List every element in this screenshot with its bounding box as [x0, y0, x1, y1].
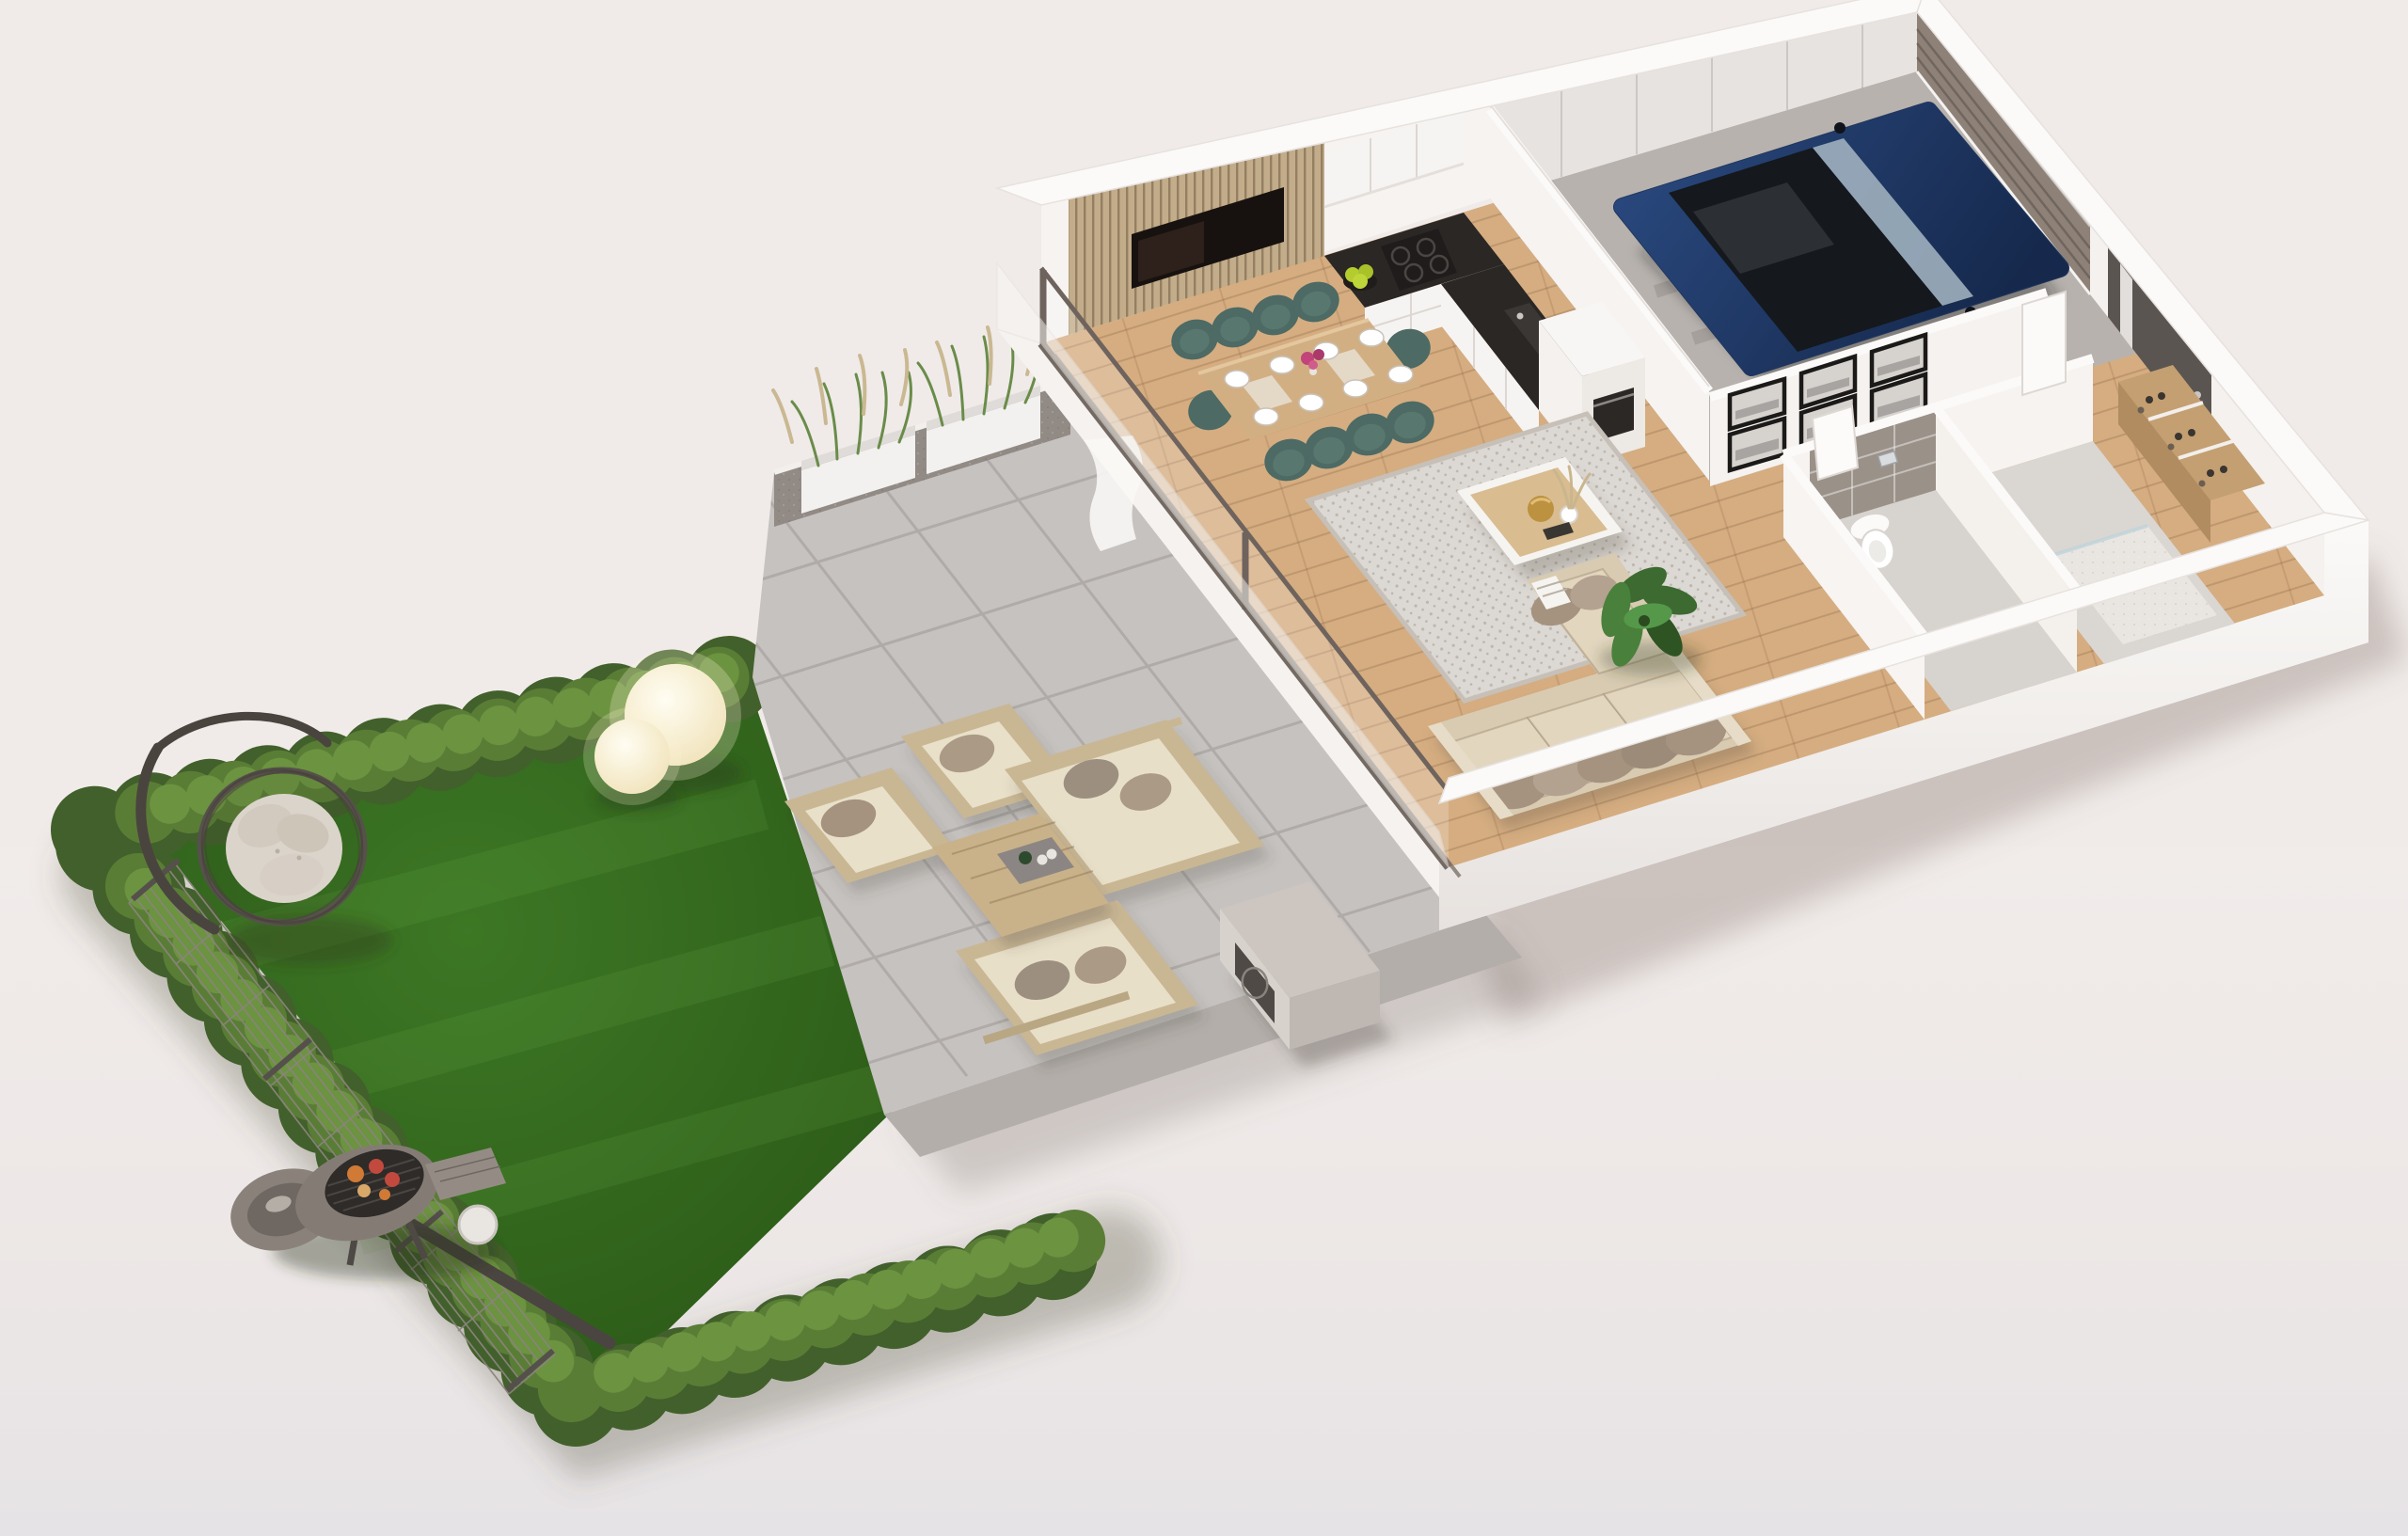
- bbq-gas-bottle: [459, 1206, 497, 1243]
- render-canvas: [0, 0, 2408, 1536]
- car-mirror: [1834, 122, 1846, 134]
- sphere-lamp-small: [594, 719, 670, 794]
- floor-plan-render: [0, 0, 2408, 1536]
- bbq-food: [347, 1165, 364, 1182]
- interior-door-open: [1813, 406, 1858, 480]
- entry-interior-door: [2022, 292, 2066, 395]
